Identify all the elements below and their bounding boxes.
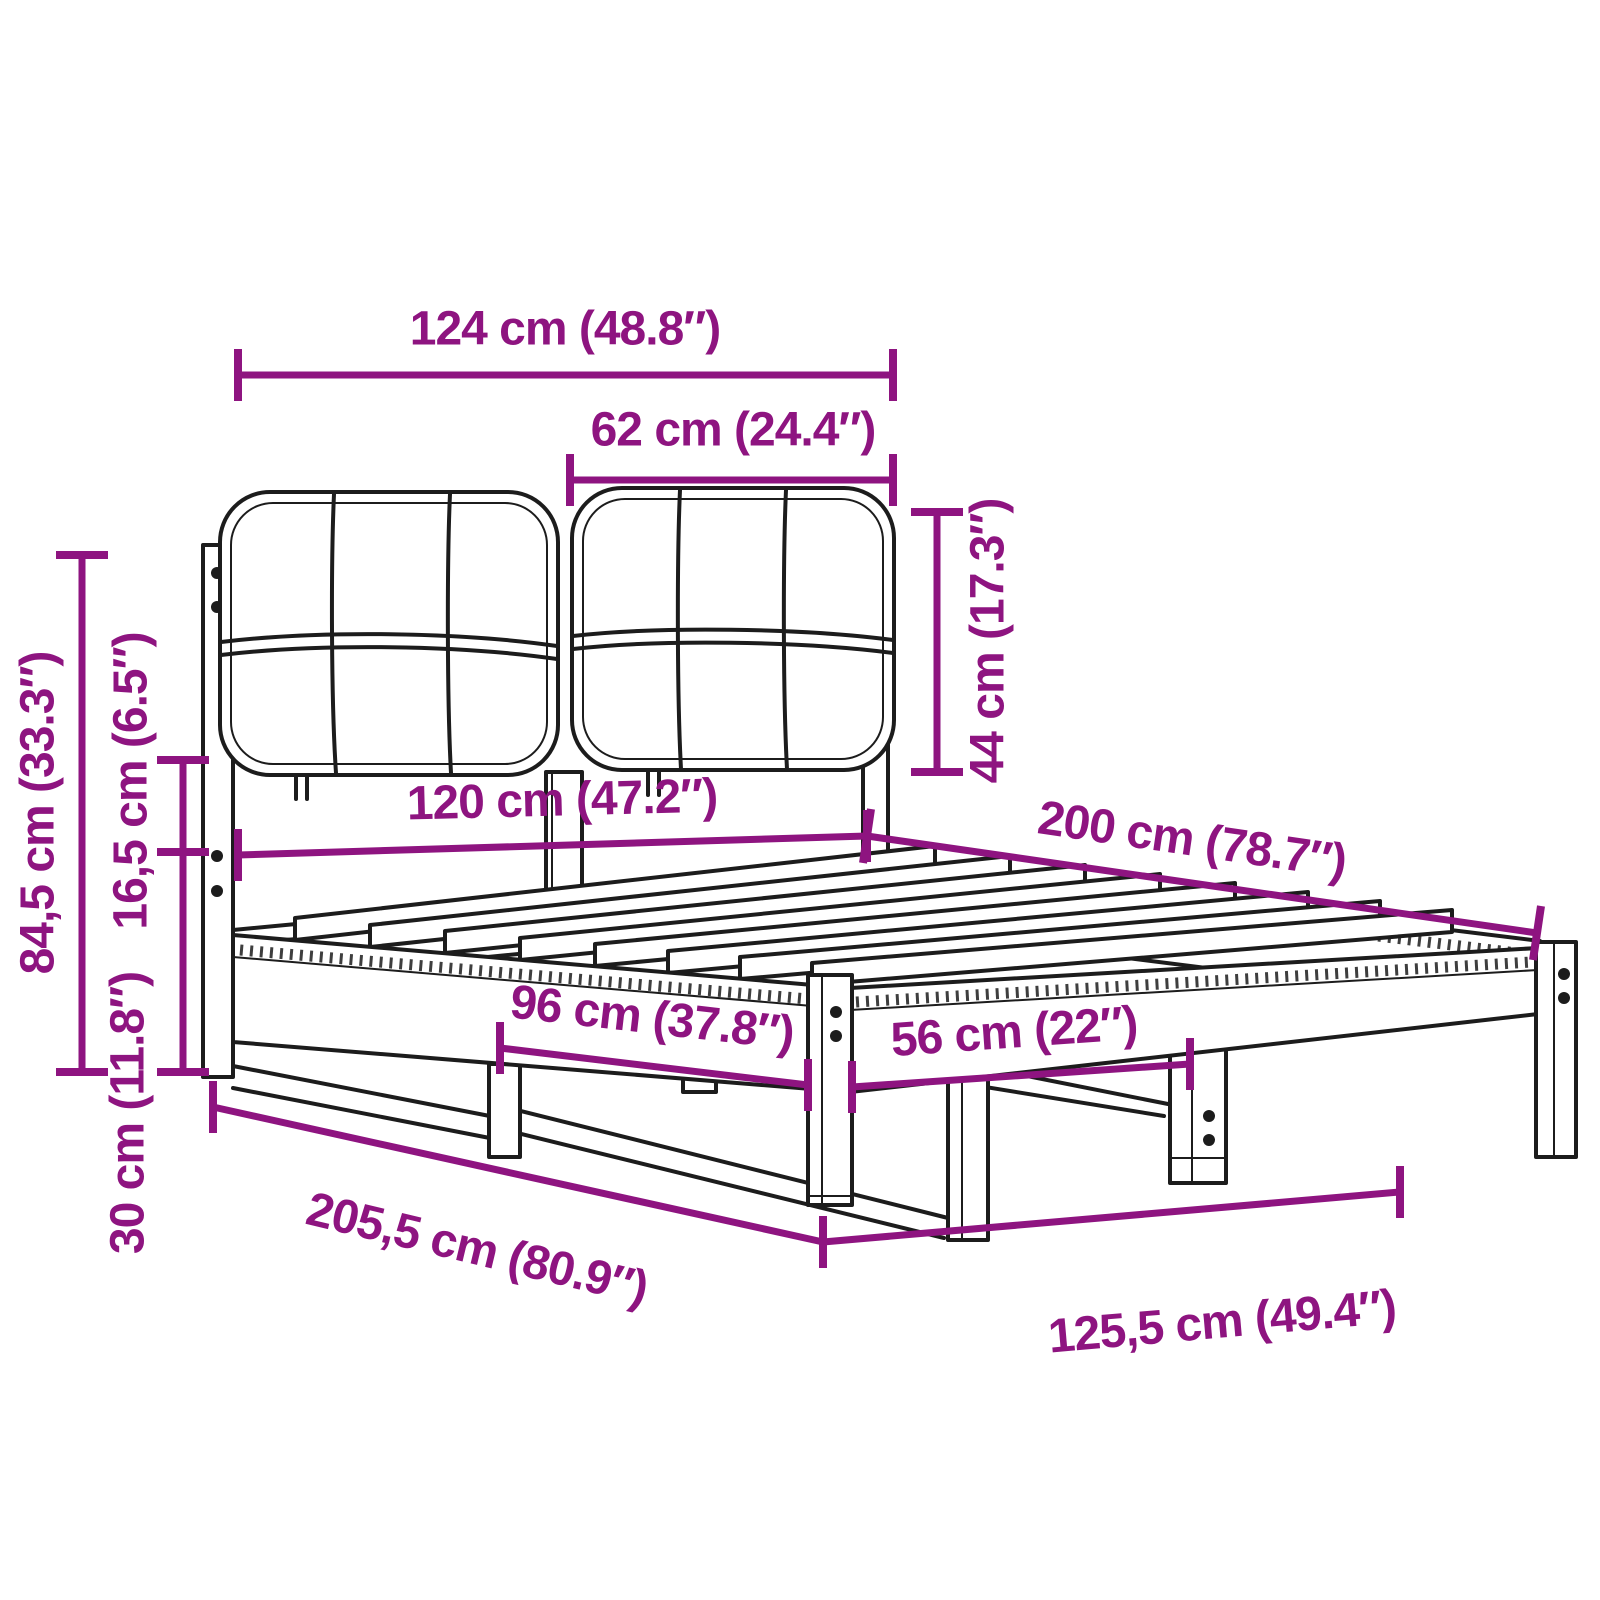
- leg-corner-front: [808, 975, 852, 1205]
- dim-headboard-width: [238, 349, 893, 401]
- bed-frame-drawing: [203, 488, 1576, 1240]
- leg-rear-center: [489, 1064, 520, 1157]
- diagram-canvas: [0, 0, 1600, 1600]
- dim-label-headboard-width: 124 cm (48.8″): [410, 302, 721, 357]
- leg-rear-foot: [948, 1078, 988, 1240]
- leg-corner-far-right: [1536, 942, 1576, 1157]
- dim-label-frame-height: 30 cm (11.8″): [101, 972, 156, 1254]
- dim-label-headboard-gap: 16,5 cm (6.5″): [104, 632, 159, 929]
- dimension-diagram: 124 cm (48.8″) 62 cm (24.4″) 44 cm (17.3…: [0, 0, 1600, 1600]
- dim-label-headboard-height: 84,5 cm (33.3″): [11, 652, 66, 975]
- dim-label-cushion-height: 44 cm (17.3″): [961, 499, 1016, 784]
- dim-label-cushion-width: 62 cm (24.4″): [591, 403, 876, 458]
- headboard-cushion-right: [572, 488, 894, 795]
- dim-label-bed-width: 120 cm (47.2″): [406, 768, 718, 831]
- headboard-cushion-left: [220, 492, 558, 799]
- dim-cushion-height: [911, 512, 963, 772]
